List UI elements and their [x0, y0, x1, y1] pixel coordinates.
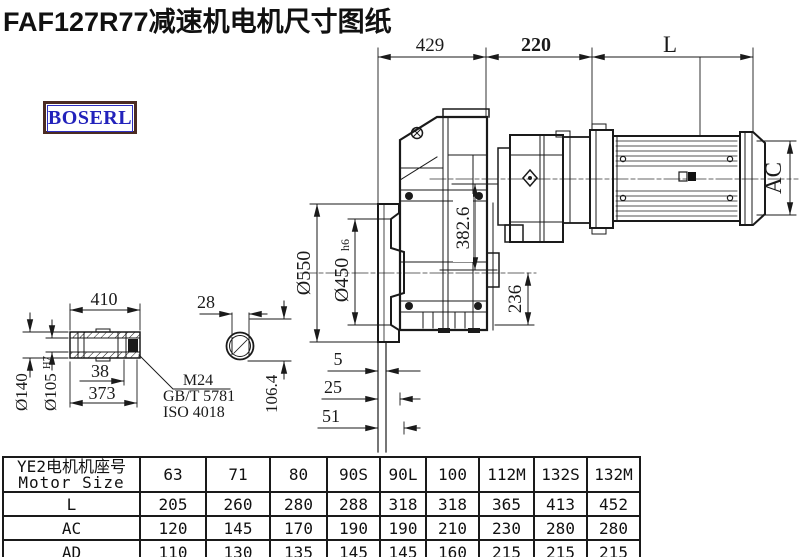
- table-header-motor-size: YE2电机机座号 Motor Size: [3, 457, 140, 492]
- table-row: AD 110 130 135 145 145 160 215 215 215: [3, 540, 640, 557]
- motor-adapter: [498, 131, 590, 242]
- dim-label-25: 25: [324, 377, 342, 397]
- dim-offsets: 5 25 51: [318, 349, 420, 434]
- dim-label-L: L: [663, 32, 677, 57]
- shaft-dims: 410 Ø140 Ø105 H7 38 373: [12, 289, 140, 411]
- table-cell: 210: [426, 516, 479, 540]
- motor-fins: [616, 141, 737, 216]
- table-header-row: YE2电机机座号 Motor Size 63 71 80 90S 90L 100…: [3, 457, 640, 492]
- table-cell: 120: [140, 516, 206, 540]
- note-screw: M24: [183, 372, 213, 389]
- table-cell: 215: [534, 540, 587, 557]
- motor-size-table: YE2电机机座号 Motor Size 63 71 80 90S 90L 100…: [2, 456, 641, 557]
- dim-382-6: 382.6: [440, 184, 497, 270]
- table-col-header: 63: [140, 457, 206, 492]
- corner-bolt-icon: [474, 302, 482, 310]
- table-col-header: 132S: [534, 457, 587, 492]
- table-cell: 160: [426, 540, 479, 557]
- motor-body: [613, 136, 740, 221]
- table-cell: 170: [270, 516, 327, 540]
- table-cell: 318: [426, 492, 479, 516]
- table-cell: 135: [270, 540, 327, 557]
- table-cell: 145: [380, 540, 426, 557]
- corner-bolt-icon: [475, 192, 483, 200]
- table-col-header: 80: [270, 457, 327, 492]
- table-cell: 260: [206, 492, 270, 516]
- dim-label-382-6: 382.6: [453, 207, 474, 250]
- dim-label-5: 5: [334, 349, 343, 369]
- table-cell: 365: [479, 492, 534, 516]
- table-cell: 280: [534, 516, 587, 540]
- row-label: AC: [3, 516, 140, 540]
- table-cell: 452: [587, 492, 640, 516]
- terminal-block: [688, 172, 696, 181]
- dim-label-450: Ø450: [331, 258, 353, 302]
- dim-label-236: 236: [505, 285, 526, 314]
- dim-label-373: 373: [89, 383, 116, 403]
- dim-label-105-tol: H7: [42, 356, 53, 369]
- dim-label-220: 220: [521, 34, 551, 56]
- dim-label-429: 429: [416, 35, 445, 56]
- dim-label-140: Ø140: [12, 373, 31, 411]
- note-std2: ISO 4018: [163, 404, 225, 421]
- table-cell: 318: [380, 492, 426, 516]
- dim-450h6: Ø450 h6: [331, 219, 391, 325]
- table-cell: 130: [206, 540, 270, 557]
- gearbox-body: [400, 109, 499, 333]
- table-cell: 280: [270, 492, 327, 516]
- drawing-page: FAF127R77减速机电机尺寸图纸 BOSERL: [0, 0, 800, 557]
- table-row: AC 120 145 170 190 190 210 230 280 280: [3, 516, 640, 540]
- table-cell: 190: [380, 516, 426, 540]
- shaft-side-view: [70, 329, 140, 361]
- ac-dimension: AC: [757, 141, 796, 215]
- row-label: L: [3, 492, 140, 516]
- dim-label-51: 51: [322, 406, 340, 426]
- shaft-leader-note: M24 GB/T 5781 ISO 4018: [139, 355, 235, 421]
- dim-label-450-tol: h6: [338, 239, 352, 251]
- table-cell: 215: [479, 540, 534, 557]
- table-col-header: 90L: [380, 457, 426, 492]
- header-line2: Motor Size: [4, 475, 139, 491]
- table-cell: 205: [140, 492, 206, 516]
- table-col-header: 132M: [587, 457, 640, 492]
- table-cell: 190: [327, 516, 380, 540]
- dim-label-38: 38: [91, 361, 109, 381]
- table-cell: 280: [587, 516, 640, 540]
- table-cell: 145: [206, 516, 270, 540]
- table-cell: 230: [479, 516, 534, 540]
- table-cell: 110: [140, 540, 206, 557]
- table-col-header: 100: [426, 457, 479, 492]
- table-cell: 413: [534, 492, 587, 516]
- dim-label-AC: AC: [761, 162, 786, 194]
- dim-label-410: 410: [91, 289, 118, 309]
- dim-236: 236: [495, 273, 534, 325]
- shaft-end-view: [227, 333, 254, 360]
- row-label: AD: [3, 540, 140, 557]
- dim-label-105: Ø105: [41, 373, 60, 411]
- table-cell: 215: [587, 540, 640, 557]
- centerlines: [300, 179, 798, 273]
- corner-bolt-icon: [405, 302, 413, 310]
- note-std1: GB/T 5781: [163, 388, 235, 405]
- table-col-header: 71: [206, 457, 270, 492]
- dim-label-550: Ø550: [293, 251, 315, 295]
- corner-bolt-icon: [405, 192, 413, 200]
- table-cell: 145: [327, 540, 380, 557]
- terminal-block: [679, 172, 687, 181]
- table-col-header: 112M: [479, 457, 534, 492]
- table-col-header: 90S: [327, 457, 380, 492]
- adapter-bolt-icon: [523, 170, 537, 186]
- dim-label-106-4: 106.4: [262, 374, 281, 413]
- dim-label-28: 28: [197, 292, 215, 312]
- shaft-key: [128, 339, 138, 352]
- table-cell: 288: [327, 492, 380, 516]
- table-row: L 205 260 280 288 318 318 365 413 452: [3, 492, 640, 516]
